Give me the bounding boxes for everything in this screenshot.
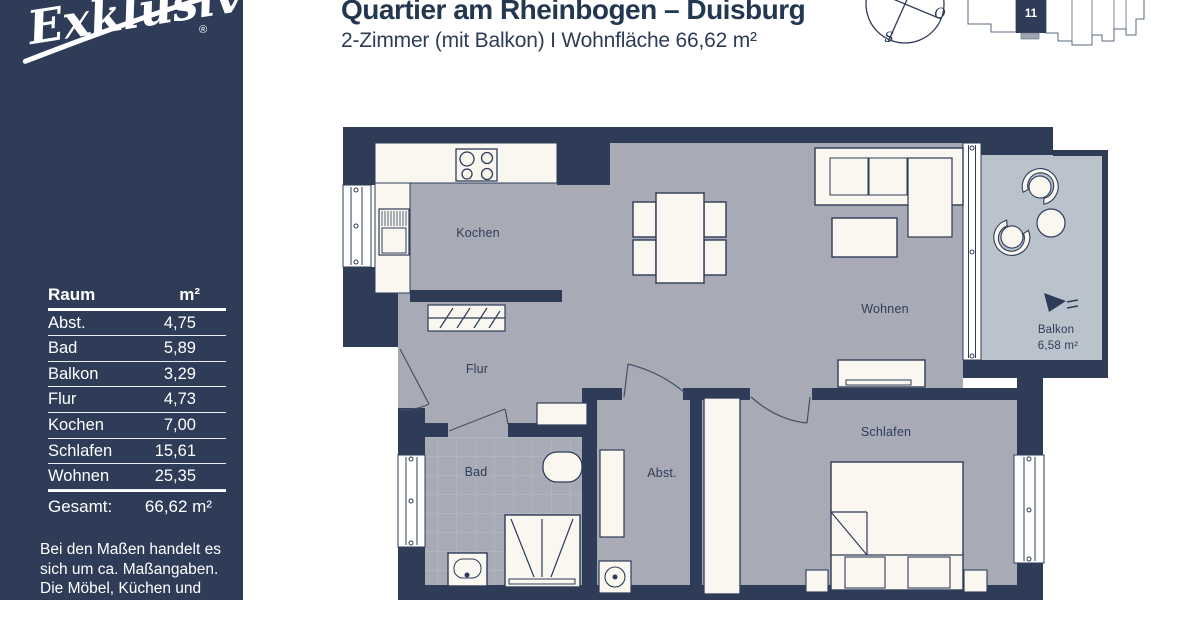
disclaimer-line: Sanitärobjekte sind bbox=[40, 599, 240, 618]
siteplan-unit-number: 11 bbox=[1025, 8, 1037, 20]
row-area: 4,75 bbox=[164, 311, 226, 336]
row-area: 7,00 bbox=[164, 413, 226, 438]
row-room: Flur bbox=[48, 387, 76, 412]
table-row: Schlafen 15,61 bbox=[48, 439, 226, 465]
dining-table-icon bbox=[656, 193, 704, 283]
row-area: 5,89 bbox=[164, 336, 226, 361]
exklusiv-logo: Exklusiv ® bbox=[0, 0, 243, 95]
balcony-wall-right bbox=[1102, 150, 1108, 372]
table-row: Flur 4,73 bbox=[48, 387, 226, 413]
room-label-flur: Flur bbox=[466, 362, 488, 376]
header-room: Raum bbox=[48, 283, 95, 308]
room-label-balkon: Balkon bbox=[1038, 324, 1074, 336]
table-total-row: Gesamt: 66,62 m² bbox=[48, 490, 226, 521]
sideboard-tv-icon bbox=[838, 360, 925, 387]
page-title: Quartier am Rheinbogen – Duisburg bbox=[341, 0, 805, 26]
page-subtitle: 2-Zimmer (mit Balkon) I Wohnfläche 66,62… bbox=[341, 29, 757, 53]
wardrobe-icon bbox=[704, 398, 740, 594]
row-room: Wohnen bbox=[48, 464, 109, 489]
bed-icon bbox=[831, 462, 963, 590]
nightstand-icon bbox=[964, 570, 987, 592]
table-header-row: Raum m² bbox=[48, 283, 226, 311]
disclaimer-text: Bei den Maßen handelt es sich um ca. Maß… bbox=[40, 540, 240, 618]
row-area: 25,35 bbox=[155, 464, 226, 489]
siteplan-icon bbox=[968, 0, 1144, 45]
row-room: Abst. bbox=[48, 311, 86, 336]
room-label-bad: Bad bbox=[465, 465, 488, 479]
chair-icon bbox=[704, 240, 726, 275]
balcony-door-window-icon bbox=[963, 143, 981, 360]
row-area: 15,61 bbox=[155, 439, 226, 464]
boiler-icon bbox=[599, 561, 631, 593]
table-row: Balkon 3,29 bbox=[48, 362, 226, 388]
row-room: Balkon bbox=[48, 362, 98, 387]
table-row: Abst. 4,75 bbox=[48, 311, 226, 337]
row-room: Bad bbox=[48, 336, 77, 361]
chair-icon bbox=[633, 202, 656, 237]
registered-mark: ® bbox=[199, 24, 207, 36]
disclaimer-line: Die Möbel, Küchen und bbox=[40, 579, 240, 599]
row-area: 4,73 bbox=[164, 387, 226, 412]
sidebar: Exklusiv ® Raum m² Abst. 4,75 Bad 5,89 B… bbox=[0, 0, 243, 600]
chair-icon bbox=[704, 202, 726, 237]
room-label-wohnen: Wohnen bbox=[861, 302, 909, 316]
table-row: Kochen 7,00 bbox=[48, 413, 226, 439]
table-row: Bad 5,89 bbox=[48, 336, 226, 362]
room-label-abst: Abst. bbox=[647, 466, 677, 480]
coffee-table-icon bbox=[832, 218, 897, 257]
fridge-icon bbox=[379, 209, 409, 255]
storage-shelf bbox=[600, 450, 624, 537]
header-area: m² bbox=[179, 283, 226, 308]
balkon-area-label: 6,58 m² bbox=[1038, 340, 1078, 352]
bedroom-window-icon bbox=[1014, 455, 1044, 563]
disclaimer-line: sich um ca. Maßangaben. bbox=[40, 560, 240, 580]
chair-icon bbox=[633, 240, 656, 275]
kitchen-window-icon bbox=[343, 185, 371, 267]
balcony-table-icon bbox=[1037, 209, 1065, 237]
room-label-kochen: Kochen bbox=[456, 226, 500, 240]
bath-window-icon bbox=[398, 455, 425, 547]
disclaimer-line: Bei den Maßen handelt es bbox=[40, 540, 240, 560]
logo-text: Exklusiv bbox=[22, 0, 243, 55]
total-label: Gesamt: bbox=[48, 492, 112, 521]
shower-icon bbox=[505, 515, 580, 587]
nightstand-icon bbox=[806, 570, 828, 592]
compass-south-label: S bbox=[884, 30, 894, 46]
compass-east-label: O bbox=[934, 6, 945, 22]
total-value: 66,62 m² bbox=[145, 492, 226, 521]
washbasin-icon bbox=[543, 452, 582, 482]
compass-icon bbox=[866, 0, 944, 43]
coat-rack-icon bbox=[428, 305, 505, 331]
table-row: Wohnen 25,35 bbox=[48, 464, 226, 490]
row-room: Kochen bbox=[48, 413, 104, 438]
room-label-schlafen: Schlafen bbox=[861, 425, 911, 439]
toilet-icon bbox=[448, 553, 487, 586]
room-area-table: Raum m² Abst. 4,75 Bad 5,89 Balkon 3,29 … bbox=[48, 283, 226, 521]
balcony-wall-top bbox=[1053, 150, 1108, 156]
wall-pillar bbox=[557, 127, 610, 185]
row-area: 3,29 bbox=[164, 362, 226, 387]
hall-cabinet bbox=[537, 403, 587, 425]
row-room: Schlafen bbox=[48, 439, 112, 464]
